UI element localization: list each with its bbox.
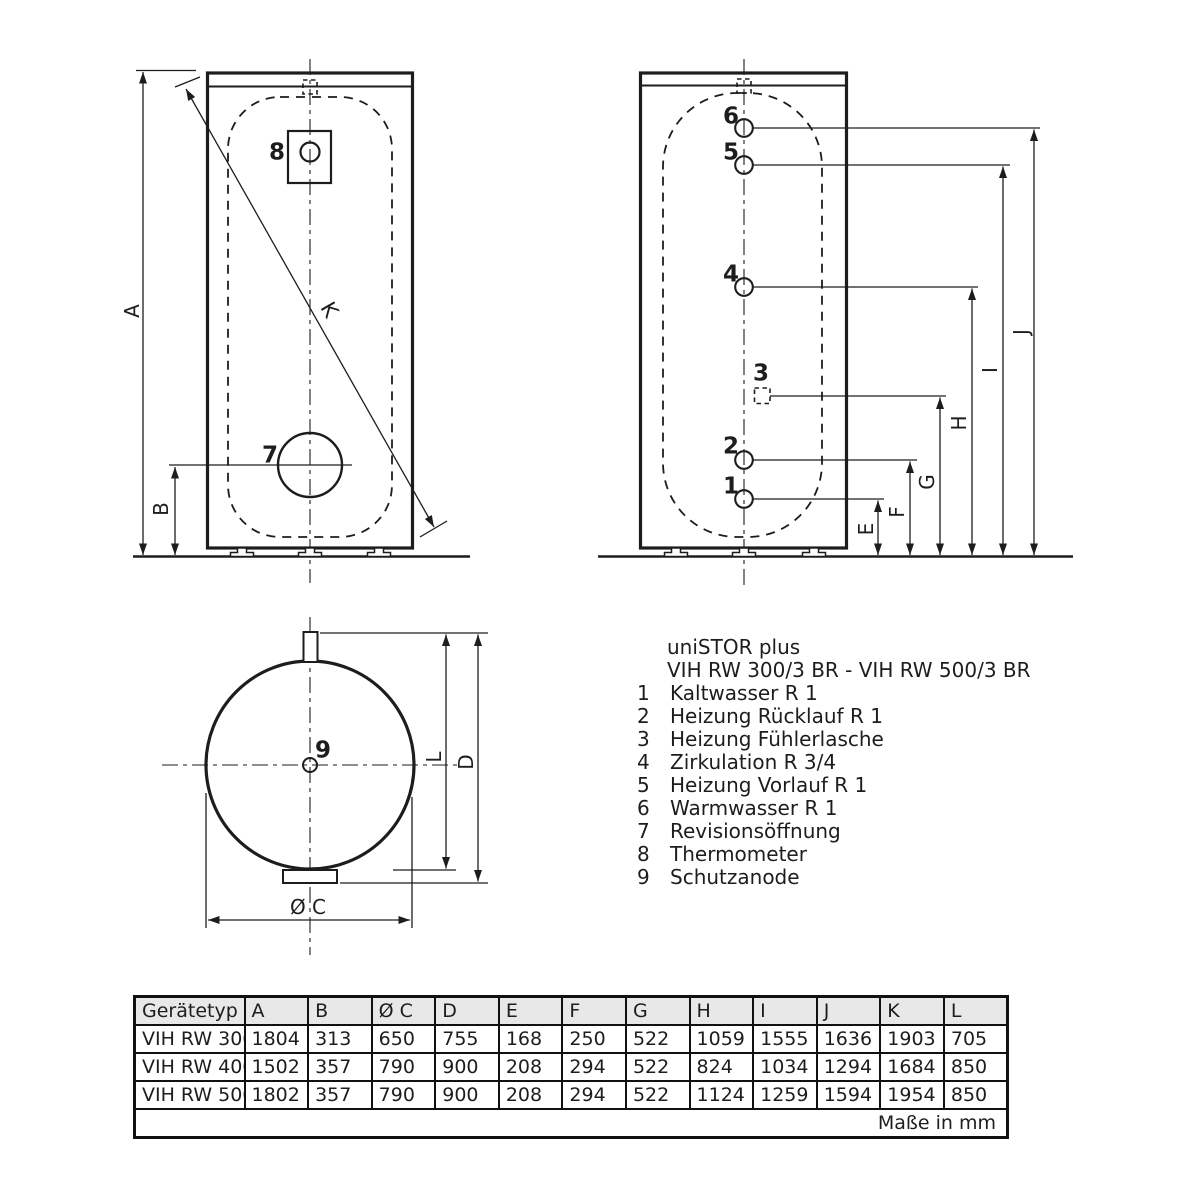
table-cell: 294: [562, 1053, 626, 1081]
table-cell: 900: [435, 1081, 499, 1109]
dimension-table-container: Gerätetyp A B Ø C D E F G H I J K L VIH …: [133, 995, 1009, 1139]
table-cell: 790: [372, 1053, 436, 1081]
table-cell: 357: [308, 1081, 372, 1109]
legend-item-number: 3: [630, 728, 670, 751]
table-header-cell: G: [626, 997, 690, 1026]
callout-label-1: 1: [723, 476, 739, 499]
legend-item-number: 7: [630, 820, 670, 843]
table-cell: 1594: [817, 1081, 881, 1109]
legend-item: 5Heizung Vorlauf R 1: [630, 774, 1031, 797]
table-cell: 1684: [880, 1053, 944, 1081]
legend-item-label: Schutzanode: [670, 866, 800, 889]
legend-item: 7Revisionsöffnung: [630, 820, 1031, 843]
top-pipe: [304, 632, 318, 662]
legend-item-number: 8: [630, 843, 670, 866]
product-title: uniSTOR plus: [667, 636, 1031, 659]
legend-item-number: 5: [630, 774, 670, 797]
table-cell: 168: [499, 1025, 563, 1053]
table-row: VIH RW 300 1804 313 650 755 168 250 522 …: [135, 1025, 1008, 1053]
callout-label-5: 5: [723, 142, 739, 165]
table-header-cell: J: [817, 997, 881, 1026]
k-tick-bottom: [420, 521, 447, 537]
bottom-flange: [283, 870, 337, 883]
table-header-cell: D: [435, 997, 499, 1026]
legend-item: 6Warmwasser R 1: [630, 797, 1031, 820]
legend-item-label: Heizung Vorlauf R 1: [670, 774, 867, 797]
table-header-cell: Gerätetyp: [135, 997, 245, 1026]
callout-label-4: 4: [723, 264, 739, 287]
table-header-cell: B: [308, 997, 372, 1026]
legend-item-label: Heizung Fühlerlasche: [670, 728, 884, 751]
legend-item-label: Thermometer: [670, 843, 807, 866]
callout-label-7: 7: [262, 445, 278, 468]
table-cell: 1903: [880, 1025, 944, 1053]
table-cell: VIH RW 400: [135, 1053, 245, 1081]
legend-item: 9Schutzanode: [630, 866, 1031, 889]
dim-label-c: Ø C: [290, 897, 326, 917]
table-cell: 357: [308, 1053, 372, 1081]
legend-item: 3Heizung Fühlerlasche: [630, 728, 1031, 751]
legend-item-number: 9: [630, 866, 670, 889]
table-cell: 294: [562, 1081, 626, 1109]
legend: uniSTOR plus VIH RW 300/3 BR - VIH RW 50…: [630, 636, 1031, 889]
table-cell: 900: [435, 1053, 499, 1081]
dim-label-f: F: [887, 506, 907, 518]
callout-label-8: 8: [269, 142, 285, 165]
dim-label-g: G: [917, 474, 937, 490]
table-cell: 208: [499, 1053, 563, 1081]
table-cell: 705: [944, 1025, 1008, 1053]
k-tick-top: [175, 77, 200, 87]
table-cell: 1502: [245, 1053, 309, 1081]
table-cell: 1059: [690, 1025, 754, 1053]
table-cell: 1954: [880, 1081, 944, 1109]
side-view-drawing: [598, 59, 1073, 585]
legend-item: 4Zirkulation R 3/4: [630, 751, 1031, 774]
legend-item-number: 2: [630, 705, 670, 728]
port-3-fuehlerlasche: [755, 388, 771, 404]
table-cell: 208: [499, 1081, 563, 1109]
table-footer-note: Maße in mm: [135, 1109, 1008, 1138]
dim-lines-e-to-j: [878, 130, 1034, 556]
legend-item-number: 6: [630, 797, 670, 820]
table-header-row: Gerätetyp A B Ø C D E F G H I J K L: [135, 997, 1008, 1026]
table-cell: 850: [944, 1081, 1008, 1109]
dim-label-j: J: [1011, 329, 1031, 335]
dim-label-d: D: [456, 754, 476, 769]
table-header-cell: Ø C: [372, 997, 436, 1026]
table-row: VIH RW 400 1502 357 790 900 208 294 522 …: [135, 1053, 1008, 1081]
table-cell: 1124: [690, 1081, 754, 1109]
legend-item-label: Revisionsöffnung: [670, 820, 841, 843]
dim-label-b: B: [151, 502, 171, 516]
dim-label-l: L: [424, 751, 444, 762]
table-header-cell: E: [499, 997, 563, 1026]
table-cell: 250: [562, 1025, 626, 1053]
legend-item-label: Warmwasser R 1: [670, 797, 837, 820]
table-cell: 1259: [753, 1081, 817, 1109]
legend-item: 8Thermometer: [630, 843, 1031, 866]
table-footer-row: Maße in mm: [135, 1109, 1008, 1138]
dimension-drawing-page: A B K 8 7 6 5 4 3 2 1 E F G H I J 9 L D …: [0, 0, 1200, 1200]
legend-item-label: Heizung Rücklauf R 1: [670, 705, 883, 728]
inner-tank-dashed-side: [663, 93, 822, 537]
table-header-cell: A: [245, 997, 309, 1026]
table-cell: 522: [626, 1081, 690, 1109]
table-row: VIH RW 500 1802 357 790 900 208 294 522 …: [135, 1081, 1008, 1109]
table-cell: 1555: [753, 1025, 817, 1053]
table-cell: 850: [944, 1053, 1008, 1081]
table-cell: 755: [435, 1025, 499, 1053]
table-cell: 650: [372, 1025, 436, 1053]
table-cell: 1804: [245, 1025, 309, 1053]
product-subtitle: VIH RW 300/3 BR - VIH RW 500/3 BR: [667, 659, 1031, 682]
table-cell: 824: [690, 1053, 754, 1081]
table-cell: VIH RW 500: [135, 1081, 245, 1109]
front-view-drawing: [133, 59, 470, 583]
table-header-cell: H: [690, 997, 754, 1026]
callout-label-3: 3: [753, 363, 769, 386]
dimension-table: Gerätetyp A B Ø C D E F G H I J K L VIH …: [133, 995, 1009, 1139]
legend-item: 2Heizung Rücklauf R 1: [630, 705, 1031, 728]
table-cell: 1636: [817, 1025, 881, 1053]
legend-item-label: Kaltwasser R 1: [670, 682, 818, 705]
dim-label-e: E: [856, 523, 876, 536]
dim-label-h: H: [949, 415, 969, 430]
callout-label-6: 6: [723, 106, 739, 129]
callout-label-9: 9: [315, 740, 331, 763]
table-cell: VIH RW 300: [135, 1025, 245, 1053]
table-header-cell: K: [880, 997, 944, 1026]
dim-label-i: I: [980, 367, 1000, 373]
table-cell: 522: [626, 1053, 690, 1081]
table-cell: 1034: [753, 1053, 817, 1081]
table-header-cell: I: [753, 997, 817, 1026]
legend-item-number: 1: [630, 682, 670, 705]
leader-lines: [753, 128, 1040, 499]
table-cell: 522: [626, 1025, 690, 1053]
legend-item-label: Zirkulation R 3/4: [670, 751, 836, 774]
table-cell: 790: [372, 1081, 436, 1109]
table-header-cell: L: [944, 997, 1008, 1026]
dim-label-a: A: [122, 304, 142, 318]
table-cell: 1802: [245, 1081, 309, 1109]
table-cell: 1294: [817, 1053, 881, 1081]
callout-label-2: 2: [723, 436, 739, 459]
table-header-cell: F: [562, 997, 626, 1026]
table-cell: 313: [308, 1025, 372, 1053]
legend-item: 1Kaltwasser R 1: [630, 682, 1031, 705]
legend-item-number: 4: [630, 751, 670, 774]
